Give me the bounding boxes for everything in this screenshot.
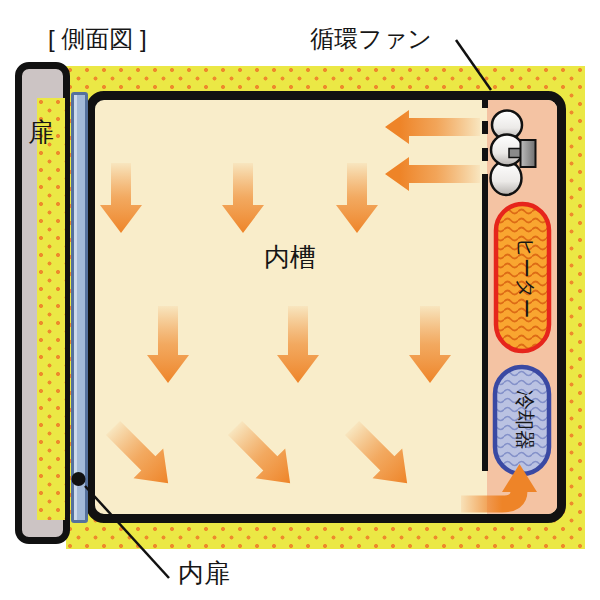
circulation-fan-label: 循環ファン xyxy=(310,26,432,52)
diagram-title: [ 側面図 ] xyxy=(48,26,147,52)
side-view-diagram: ヒーター 冷却器 xyxy=(0,0,600,600)
door-label: 扉 xyxy=(28,118,54,147)
inner-chamber-label: 内槽 xyxy=(264,243,316,272)
inner-door-label: 内扉 xyxy=(178,559,230,588)
door-insulation-strip xyxy=(37,98,65,520)
inner-door-strip xyxy=(71,92,88,523)
inner-chamber-box xyxy=(86,91,566,523)
conditioning-duct xyxy=(487,100,557,514)
